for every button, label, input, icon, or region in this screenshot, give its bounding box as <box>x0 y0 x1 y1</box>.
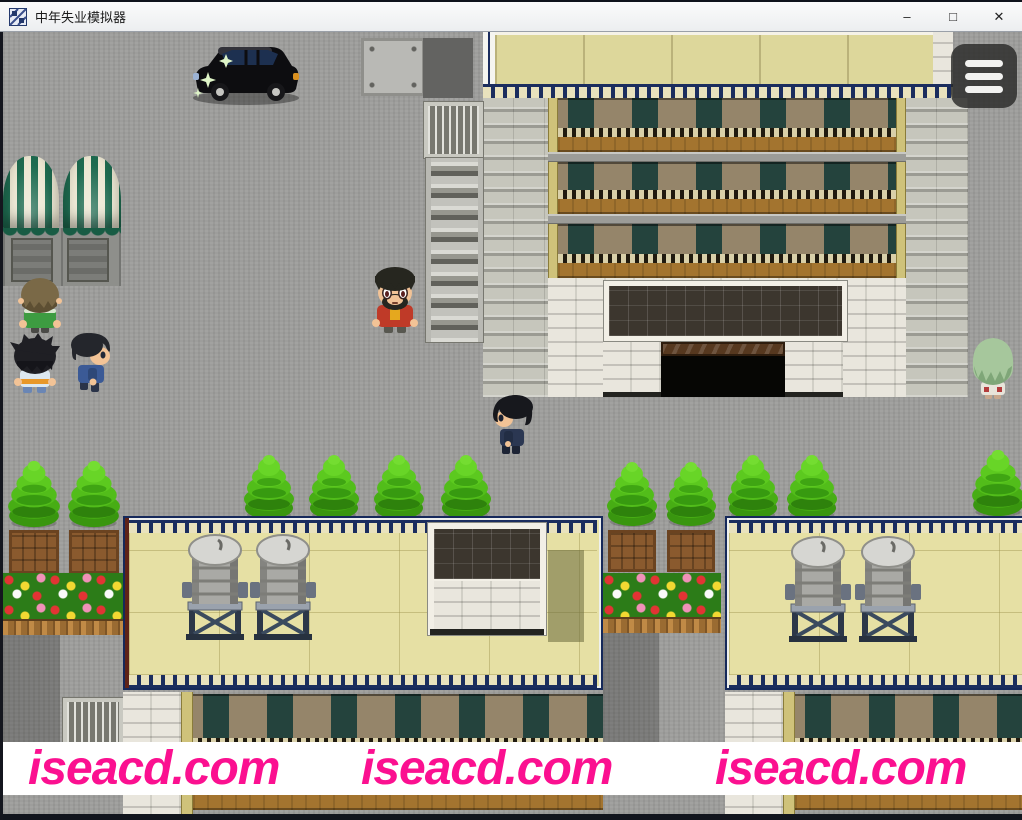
signboard-grid <box>609 286 842 336</box>
black-car <box>188 40 304 106</box>
building-dentil-trim <box>483 84 953 98</box>
watermark-band: iseacd.com iseacd.com iseacd.com <box>3 742 1022 795</box>
balcony-band <box>558 254 896 278</box>
roof-dentil-bottom <box>729 675 1022 688</box>
tree-planter <box>608 530 656 572</box>
lower-vent-shutter <box>63 698 123 748</box>
rooftop-building-right <box>725 516 1022 690</box>
tree-planter <box>9 530 59 574</box>
pavement-shadow <box>3 635 60 747</box>
floor-divider <box>548 214 906 224</box>
flower-bed <box>603 573 721 617</box>
application-window: 中年失业模拟器 – □ ✕ <box>0 0 1022 820</box>
close-button[interactable]: ✕ <box>976 2 1022 31</box>
maximize-button[interactable]: □ <box>930 2 976 31</box>
exterior-staircase[interactable] <box>426 158 483 342</box>
entrance-signboard <box>603 280 848 342</box>
tree-planter <box>667 530 715 572</box>
npc-black-spiky-back[interactable] <box>9 333 61 395</box>
watermark-text: iseacd.com <box>361 742 612 795</box>
roof-shadow-patch <box>548 550 584 642</box>
menu-bar <box>965 73 1003 80</box>
npc-green-jacket-back[interactable] <box>17 276 63 334</box>
water-tank <box>853 528 923 646</box>
balcony-band <box>558 128 896 152</box>
dark-metal-plate <box>423 38 473 98</box>
shop-awning <box>3 156 59 230</box>
game-viewport[interactable]: iseacd.com iseacd.com iseacd.com <box>0 32 1022 820</box>
minimize-button[interactable]: – <box>884 2 930 31</box>
building-stone-column <box>906 98 968 397</box>
entrance-column <box>785 342 843 392</box>
lower-window-row <box>193 694 603 738</box>
water-tank <box>180 526 250 644</box>
building-stone-column <box>483 98 548 397</box>
player-character[interactable] <box>489 392 537 456</box>
flower-bed-border <box>3 619 125 635</box>
facade-pillar <box>896 98 906 278</box>
water-tank <box>248 526 318 644</box>
menu-bar <box>965 60 1003 67</box>
water-tank <box>783 528 853 646</box>
bottom-edge-strip <box>3 814 1022 820</box>
street-tree <box>65 458 123 532</box>
entrance-doorway[interactable] <box>661 356 785 397</box>
hamburger-menu-icon[interactable] <box>951 44 1017 108</box>
entrance-beam <box>661 342 785 356</box>
street-tree <box>663 458 719 532</box>
window-titlebar: 中年失业模拟器 – □ ✕ <box>0 0 1022 32</box>
watermark-text: iseacd.com <box>28 742 279 795</box>
menu-bar <box>965 86 1003 93</box>
npc-red-jacket-front[interactable] <box>369 266 421 334</box>
building-facade <box>548 98 906 397</box>
facade-pillar <box>548 98 558 278</box>
office-building <box>483 32 968 397</box>
window-title: 中年失业模拟器 <box>35 7 126 26</box>
entrance-column <box>603 342 661 392</box>
balcony-band <box>558 190 896 214</box>
npc-green-hair-back[interactable] <box>967 334 1019 404</box>
shop-door[interactable] <box>67 238 109 282</box>
column-base <box>603 392 661 397</box>
roof-structure-footing <box>430 629 544 635</box>
building-roof-band <box>495 32 933 84</box>
roof-access-structure <box>427 522 547 636</box>
lower-window-row <box>795 694 1022 738</box>
awning-scallop <box>3 228 59 238</box>
roof-structure-base <box>434 581 540 629</box>
street-tree <box>5 458 63 532</box>
rooftop-building-left <box>123 516 603 690</box>
roof-dentil-bottom <box>129 675 597 688</box>
awning-scallop <box>63 228 121 238</box>
stair-shutter <box>424 102 483 158</box>
roof-structure-grid <box>434 529 540 579</box>
tree-planter <box>69 530 119 574</box>
pavement-shadow <box>603 633 659 745</box>
window-row <box>558 98 896 128</box>
shop-awning <box>63 156 121 230</box>
floor-divider <box>548 152 906 162</box>
window-row <box>558 162 896 190</box>
column-base <box>785 392 843 397</box>
app-icon <box>9 8 27 26</box>
flower-bed-border <box>603 617 721 633</box>
street-tree <box>604 458 660 532</box>
window-row <box>558 224 896 254</box>
flower-bed <box>3 573 125 619</box>
watermark-text: iseacd.com <box>715 742 966 795</box>
npc-blue-jacket-side[interactable] <box>67 330 117 392</box>
window-controls: – □ ✕ <box>884 2 1022 31</box>
metal-plate <box>361 38 425 96</box>
